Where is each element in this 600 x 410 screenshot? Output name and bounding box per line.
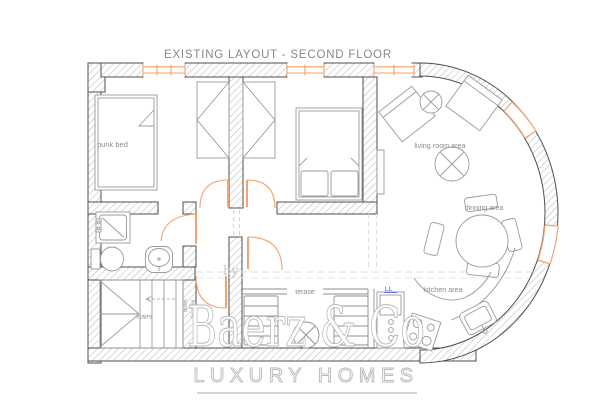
room-label-living-room: living room area xyxy=(414,141,465,150)
room-label-bunk-bed: bunk bed xyxy=(97,140,128,149)
toilet xyxy=(91,247,124,271)
watermark-tagline: LUXURY HOMES xyxy=(193,365,418,387)
bathroom-right-wall xyxy=(183,246,196,267)
room-label-dinning: dinning area xyxy=(465,205,504,212)
bunkroom-door xyxy=(200,180,228,208)
shower xyxy=(96,212,130,243)
bathroom-sink xyxy=(146,247,173,273)
dining-table xyxy=(456,215,508,267)
page-title: EXISTING LAYOUT - SECOND FLOOR xyxy=(164,49,392,61)
by-note: by xyxy=(223,264,239,279)
floor-plan-drawing: EXISTING LAYOUT - SECOND FLOOR xyxy=(0,0,600,410)
bathroom-door xyxy=(161,214,196,244)
bedroom-divider-wall xyxy=(229,77,243,208)
sliding-door xyxy=(377,150,384,194)
curved-window xyxy=(504,102,536,138)
curved-window xyxy=(538,225,558,264)
living-room xyxy=(379,75,502,181)
dining-chair xyxy=(423,222,444,256)
wardrobe xyxy=(243,82,275,158)
top-wall-segment xyxy=(324,63,374,77)
window xyxy=(143,64,185,77)
room-label-stairs: stairs xyxy=(136,314,153,321)
top-wall-segment xyxy=(185,63,287,77)
terrace-door xyxy=(248,237,282,270)
bathroom xyxy=(91,212,173,273)
ceiling-light-icon xyxy=(435,147,469,181)
armchair xyxy=(446,75,502,130)
watermark-brand: Baerz & Co xyxy=(187,293,425,359)
ceiling-light-icon xyxy=(420,91,442,113)
floor-plan-page: EXISTING LAYOUT - SECOND FLOOR xyxy=(0,0,600,410)
pillow xyxy=(331,171,358,196)
master-right-wall xyxy=(363,77,377,213)
watermark: Baerz & Co LUXURY HOMES xyxy=(187,293,425,393)
master-bottom-wall xyxy=(277,202,377,214)
bathroom-bottom-wall xyxy=(88,267,195,280)
blue-mark-text: LL xyxy=(385,286,393,293)
wall-stub xyxy=(183,202,196,214)
window xyxy=(287,64,324,77)
master-bedroom-door xyxy=(247,180,275,208)
window xyxy=(374,64,414,77)
pillow xyxy=(301,171,328,196)
room-label-kitchen: kitchen area xyxy=(423,285,462,294)
wardrobe xyxy=(197,82,229,158)
top-wall-segment xyxy=(101,63,143,77)
